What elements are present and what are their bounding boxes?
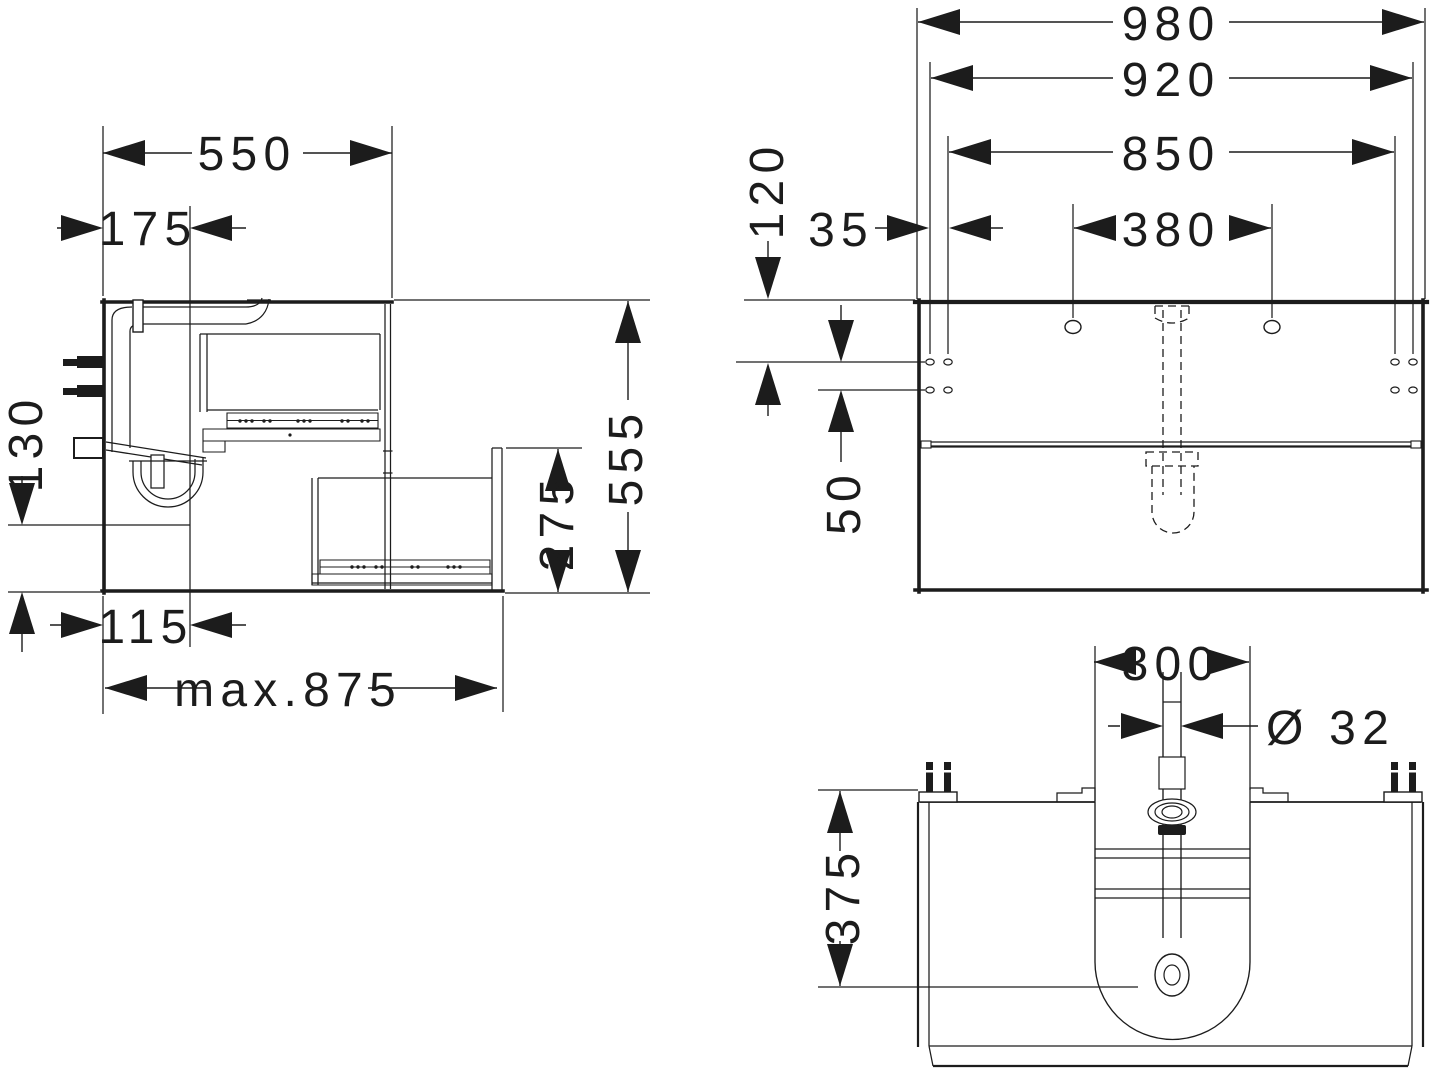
dim-label: 275 bbox=[531, 473, 584, 572]
dim-label: 980 bbox=[1122, 0, 1221, 51]
dim-label: 380 bbox=[1122, 204, 1221, 257]
dim-label: 115 bbox=[98, 601, 193, 654]
technical-drawing-page: 550 175 130 115 bbox=[0, 0, 1431, 1080]
dim-label: 300 bbox=[1122, 638, 1221, 691]
dim-label: 850 bbox=[1122, 128, 1221, 181]
supply-connection-icon bbox=[63, 359, 78, 366]
dim-label: 920 bbox=[1122, 54, 1221, 107]
supply-connection-icon bbox=[63, 388, 78, 395]
dim-label: Ø 32 bbox=[1266, 702, 1395, 755]
dim-label: 555 bbox=[600, 408, 653, 507]
dim-label: 130 bbox=[0, 394, 53, 493]
wall-outlet-box bbox=[74, 438, 103, 458]
dim-label: 35 bbox=[808, 204, 874, 257]
dimension-drawing: 550 175 130 115 bbox=[0, 0, 1431, 1080]
dim-label: 120 bbox=[741, 141, 794, 240]
dim-label: 175 bbox=[99, 203, 198, 256]
dim-label: 550 bbox=[198, 128, 297, 181]
dim-label: 50 bbox=[818, 469, 871, 535]
dim-label: 375 bbox=[817, 847, 870, 946]
dim-label: max.875 bbox=[174, 664, 402, 717]
